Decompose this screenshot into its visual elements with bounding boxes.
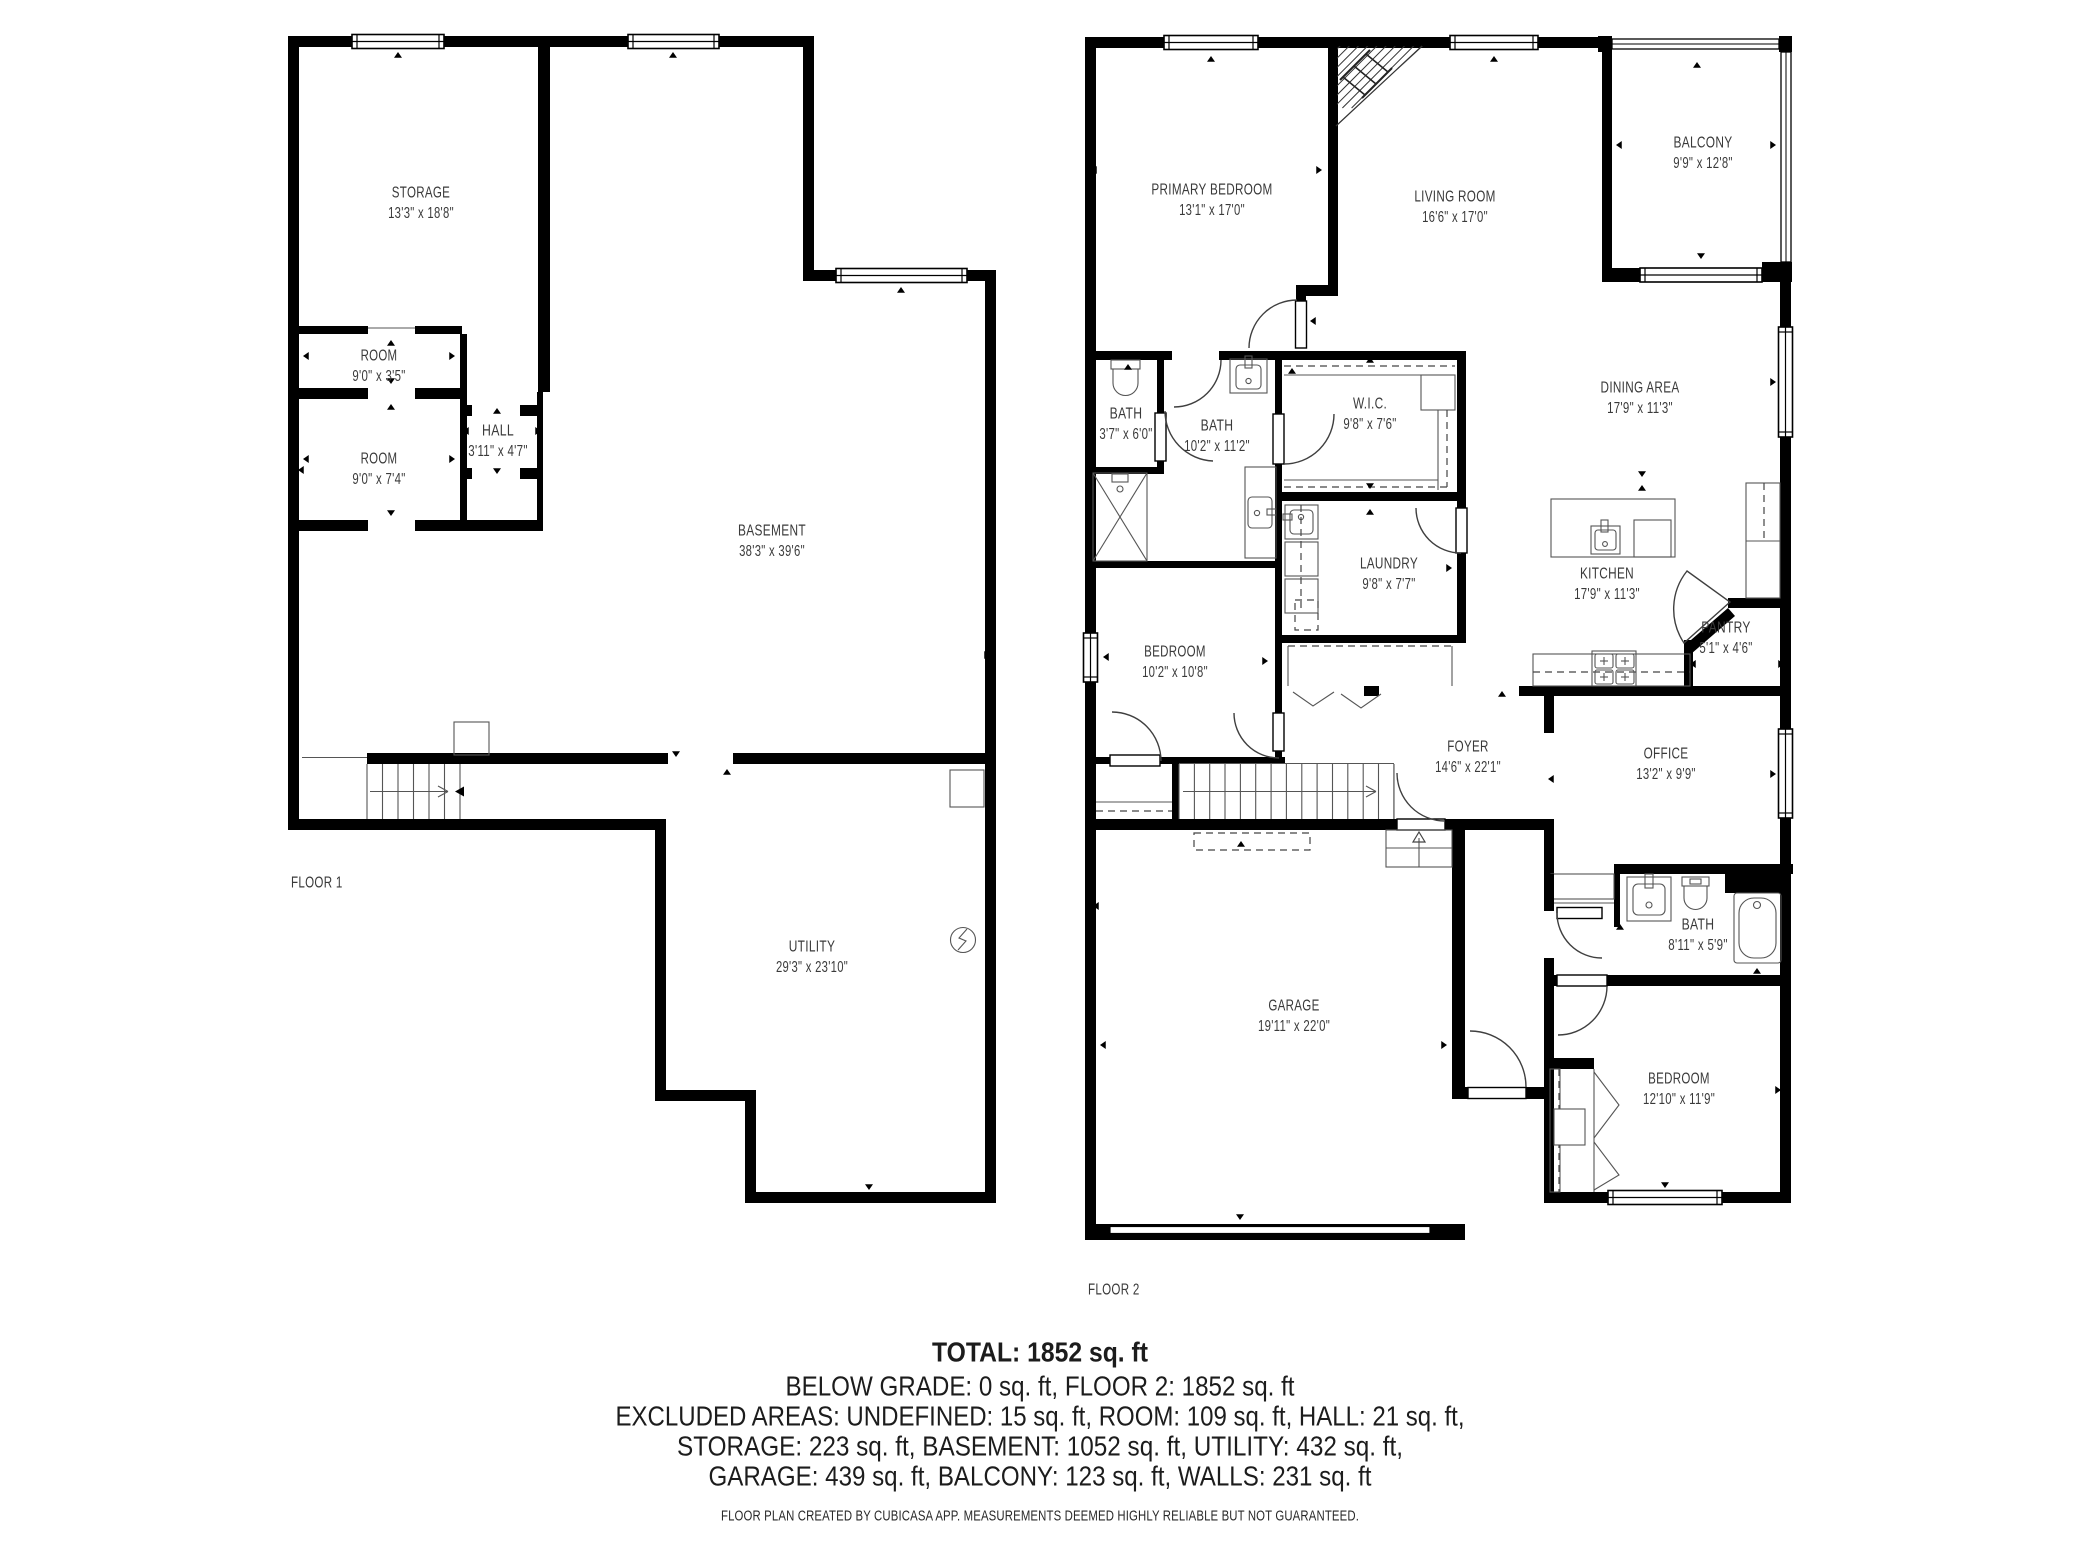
svg-text:FLOOR PLAN CREATED BY CUBICASA: FLOOR PLAN CREATED BY CUBICASA APP. MEAS… bbox=[721, 1508, 1359, 1525]
svg-text:STORAGE: STORAGE bbox=[392, 185, 450, 202]
svg-text:10'2" x 10'8": 10'2" x 10'8" bbox=[1142, 664, 1208, 681]
svg-text:BATH: BATH bbox=[1110, 406, 1143, 423]
svg-text:GARAGE: GARAGE bbox=[1268, 998, 1319, 1015]
svg-text:BALCONY: BALCONY bbox=[1673, 135, 1732, 152]
svg-text:13'2" x 9'9": 13'2" x 9'9" bbox=[1636, 766, 1696, 783]
svg-text:FLOOR 2: FLOOR 2 bbox=[1088, 1282, 1140, 1299]
svg-text:29'3" x 23'10": 29'3" x 23'10" bbox=[776, 959, 848, 976]
svg-text:13'3" x 18'8": 13'3" x 18'8" bbox=[388, 205, 454, 222]
svg-text:BELOW GRADE: 0 sq. ft, FLOOR 2: BELOW GRADE: 0 sq. ft, FLOOR 2: 1852 sq.… bbox=[786, 1371, 1295, 1402]
svg-text:EXCLUDED AREAS: UNDEFINED: 15: EXCLUDED AREAS: UNDEFINED: 15 sq. ft, RO… bbox=[616, 1401, 1465, 1432]
svg-text:GARAGE: 439 sq. ft, BALCONY: 1: GARAGE: 439 sq. ft, BALCONY: 123 sq. ft,… bbox=[709, 1461, 1372, 1492]
svg-text:17'9" x 11'3": 17'9" x 11'3" bbox=[1574, 586, 1640, 603]
svg-text:ROOM: ROOM bbox=[361, 348, 398, 365]
svg-text:PRIMARY BEDROOM: PRIMARY BEDROOM bbox=[1151, 182, 1272, 199]
svg-text:9'8" x 7'6": 9'8" x 7'6" bbox=[1343, 416, 1396, 433]
svg-text:ROOM: ROOM bbox=[361, 451, 398, 468]
svg-text:5'1" x 4'6": 5'1" x 4'6" bbox=[1699, 640, 1752, 657]
svg-text:DINING AREA: DINING AREA bbox=[1601, 380, 1680, 397]
svg-text:LAUNDRY: LAUNDRY bbox=[1360, 556, 1418, 573]
svg-text:13'1" x 17'0": 13'1" x 17'0" bbox=[1179, 202, 1245, 219]
svg-text:9'0" x 3'5": 9'0" x 3'5" bbox=[352, 368, 405, 385]
svg-text:9'0" x 7'4": 9'0" x 7'4" bbox=[352, 471, 405, 488]
svg-text:BEDROOM: BEDROOM bbox=[1648, 1071, 1710, 1088]
svg-text:38'3" x 39'6": 38'3" x 39'6" bbox=[739, 543, 805, 560]
svg-text:19'11" x 22'0": 19'11" x 22'0" bbox=[1258, 1018, 1330, 1035]
svg-text:HALL: HALL bbox=[482, 423, 514, 440]
svg-text:12'10" x 11'9": 12'10" x 11'9" bbox=[1643, 1091, 1715, 1108]
svg-text:14'6" x 22'1": 14'6" x 22'1" bbox=[1435, 759, 1501, 776]
svg-text:BATH: BATH bbox=[1682, 917, 1715, 934]
svg-text:BEDROOM: BEDROOM bbox=[1144, 644, 1206, 661]
svg-text:STORAGE: 223 sq. ft, BASEMENT:: STORAGE: 223 sq. ft, BASEMENT: 1052 sq. … bbox=[677, 1431, 1403, 1462]
svg-text:3'7" x 6'0": 3'7" x 6'0" bbox=[1099, 426, 1152, 443]
svg-text:TOTAL: 1852 sq. ft: TOTAL: 1852 sq. ft bbox=[932, 1337, 1148, 1368]
svg-text:9'9" x 12'8": 9'9" x 12'8" bbox=[1673, 155, 1733, 172]
svg-text:16'6" x 17'0": 16'6" x 17'0" bbox=[1422, 209, 1488, 226]
svg-text:9'8" x 7'7": 9'8" x 7'7" bbox=[1362, 576, 1415, 593]
svg-text:OFFICE: OFFICE bbox=[1644, 746, 1689, 763]
svg-text:KITCHEN: KITCHEN bbox=[1580, 566, 1634, 583]
svg-text:UTILITY: UTILITY bbox=[789, 939, 836, 956]
svg-text:LIVING ROOM: LIVING ROOM bbox=[1414, 189, 1495, 206]
svg-text:FLOOR 1: FLOOR 1 bbox=[291, 875, 343, 892]
svg-text:8'11" x 5'9": 8'11" x 5'9" bbox=[1668, 937, 1728, 954]
svg-text:PANTRY: PANTRY bbox=[1701, 620, 1750, 637]
svg-text:BASEMENT: BASEMENT bbox=[738, 523, 806, 540]
svg-text:FOYER: FOYER bbox=[1447, 739, 1488, 756]
svg-text:3'11" x 4'7": 3'11" x 4'7" bbox=[468, 443, 528, 460]
svg-text:W.I.C.: W.I.C. bbox=[1353, 396, 1387, 413]
svg-text:BATH: BATH bbox=[1201, 418, 1234, 435]
svg-text:17'9" x 11'3": 17'9" x 11'3" bbox=[1607, 400, 1673, 417]
svg-text:10'2" x 11'2": 10'2" x 11'2" bbox=[1184, 438, 1250, 455]
